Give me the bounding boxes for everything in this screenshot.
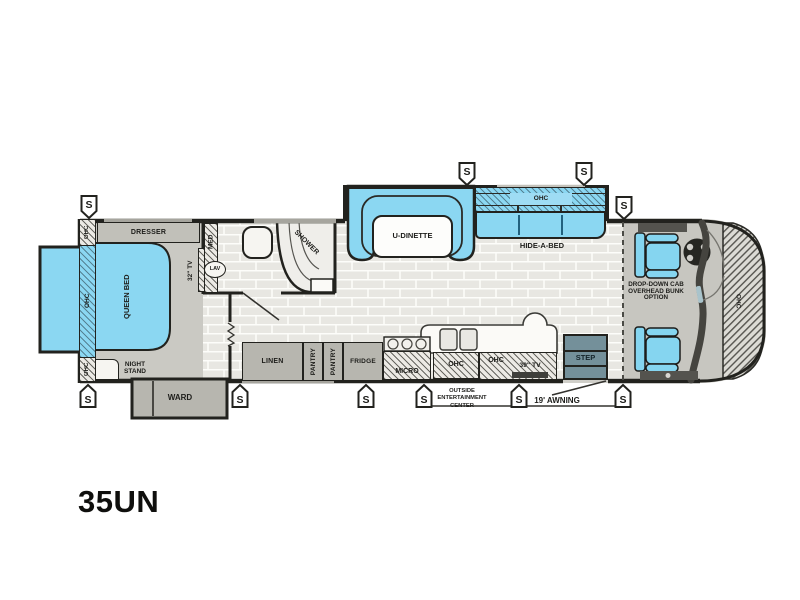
cab-header <box>638 223 687 232</box>
pantry-1-label: PANTRY <box>310 348 317 375</box>
pantry-1: PANTRY <box>303 342 323 381</box>
sink-right <box>460 329 477 350</box>
svg-text:S: S <box>620 200 627 212</box>
hide-a-bed-ohc: OHC <box>475 187 606 212</box>
entry-step: STEP <box>563 334 608 380</box>
fridge-label: FRIDGE <box>350 358 376 365</box>
hide-a-bed-label: HIDE-A-BED <box>498 241 586 252</box>
pantry-2: PANTRY <box>323 342 343 381</box>
sofa-cushion-div-2 <box>561 215 563 235</box>
svg-text:S: S <box>619 394 626 406</box>
entry-light <box>666 373 671 378</box>
floorplan-canvas: S S S S S S S S S S DRESSER OHC OHC OHC … <box>0 0 800 600</box>
bunk-option-label: DROP-DOWN CAB OVERHEAD BUNK OPTION <box>617 277 695 307</box>
outside-line-2: ENTERTAINMENT <box>437 395 486 402</box>
linen-cabinet: LINEN <box>242 342 303 381</box>
fridge: FRIDGE <box>343 342 383 381</box>
ohc-rear-top-label: OHC <box>79 221 96 244</box>
med-label: MED <box>204 226 218 258</box>
queen-bed-label: QUEEN BED <box>118 256 136 338</box>
tv-32-label: 32" TV <box>184 250 197 292</box>
driver-seat <box>635 327 680 372</box>
svg-text:S: S <box>236 394 243 406</box>
shower-seat <box>311 279 333 292</box>
outside-entertainment-label: OUTSIDE ENTERTAINMENT CENTER <box>430 387 494 411</box>
ohc-galley-1-label: OHC <box>433 358 479 372</box>
svg-text:S: S <box>420 394 427 406</box>
pantry-2-label: PANTRY <box>330 348 337 375</box>
svg-text:S: S <box>85 199 92 211</box>
svg-text:S: S <box>463 166 470 178</box>
ward-label: WARD <box>150 389 210 407</box>
ohc-rear-strip-label: OHC <box>79 282 96 320</box>
micro-label: MICRO <box>383 366 431 378</box>
sofa-ohc-line-2 <box>476 205 605 206</box>
tv-39 <box>512 372 548 378</box>
linen-label: LINEN <box>262 358 284 365</box>
dresser: DRESSER <box>97 222 200 243</box>
u-dinette-label: U-DINETTE <box>376 228 449 244</box>
night-stand-label: NIGHT STAND <box>116 357 154 379</box>
step-label: STEP <box>565 351 606 365</box>
queen-slideout <box>40 247 81 352</box>
outside-line-1: OUTSIDE <box>449 388 475 395</box>
tv-39-label: 39" TV <box>509 360 551 371</box>
sofa-ohc-label: OHC <box>510 193 572 205</box>
model-number: 35UN <box>78 484 159 520</box>
ohc-rear-bottom-label: OHC <box>79 359 96 380</box>
svg-text:S: S <box>84 394 91 406</box>
toilet <box>243 227 272 258</box>
svg-text:S: S <box>362 394 369 406</box>
sofa-cushion-div-1 <box>518 215 520 235</box>
svg-text:S: S <box>580 166 587 178</box>
outside-line-3: CENTER <box>450 403 474 410</box>
dresser-label: DRESSER <box>131 229 166 236</box>
hide-a-bed-sofa <box>475 211 606 239</box>
svg-text:S: S <box>515 394 522 406</box>
lav: LAV <box>204 261 226 278</box>
awning-label: 19' AWNING <box>528 395 586 407</box>
passenger-seat <box>635 233 680 278</box>
front-cap-ohc-label: OHC <box>731 286 745 316</box>
ohc-galley-2-label: OHC <box>481 355 511 367</box>
sink-left <box>440 329 457 350</box>
step-tread-2 <box>565 365 606 367</box>
bunk-line-3: OPTION <box>644 295 668 302</box>
